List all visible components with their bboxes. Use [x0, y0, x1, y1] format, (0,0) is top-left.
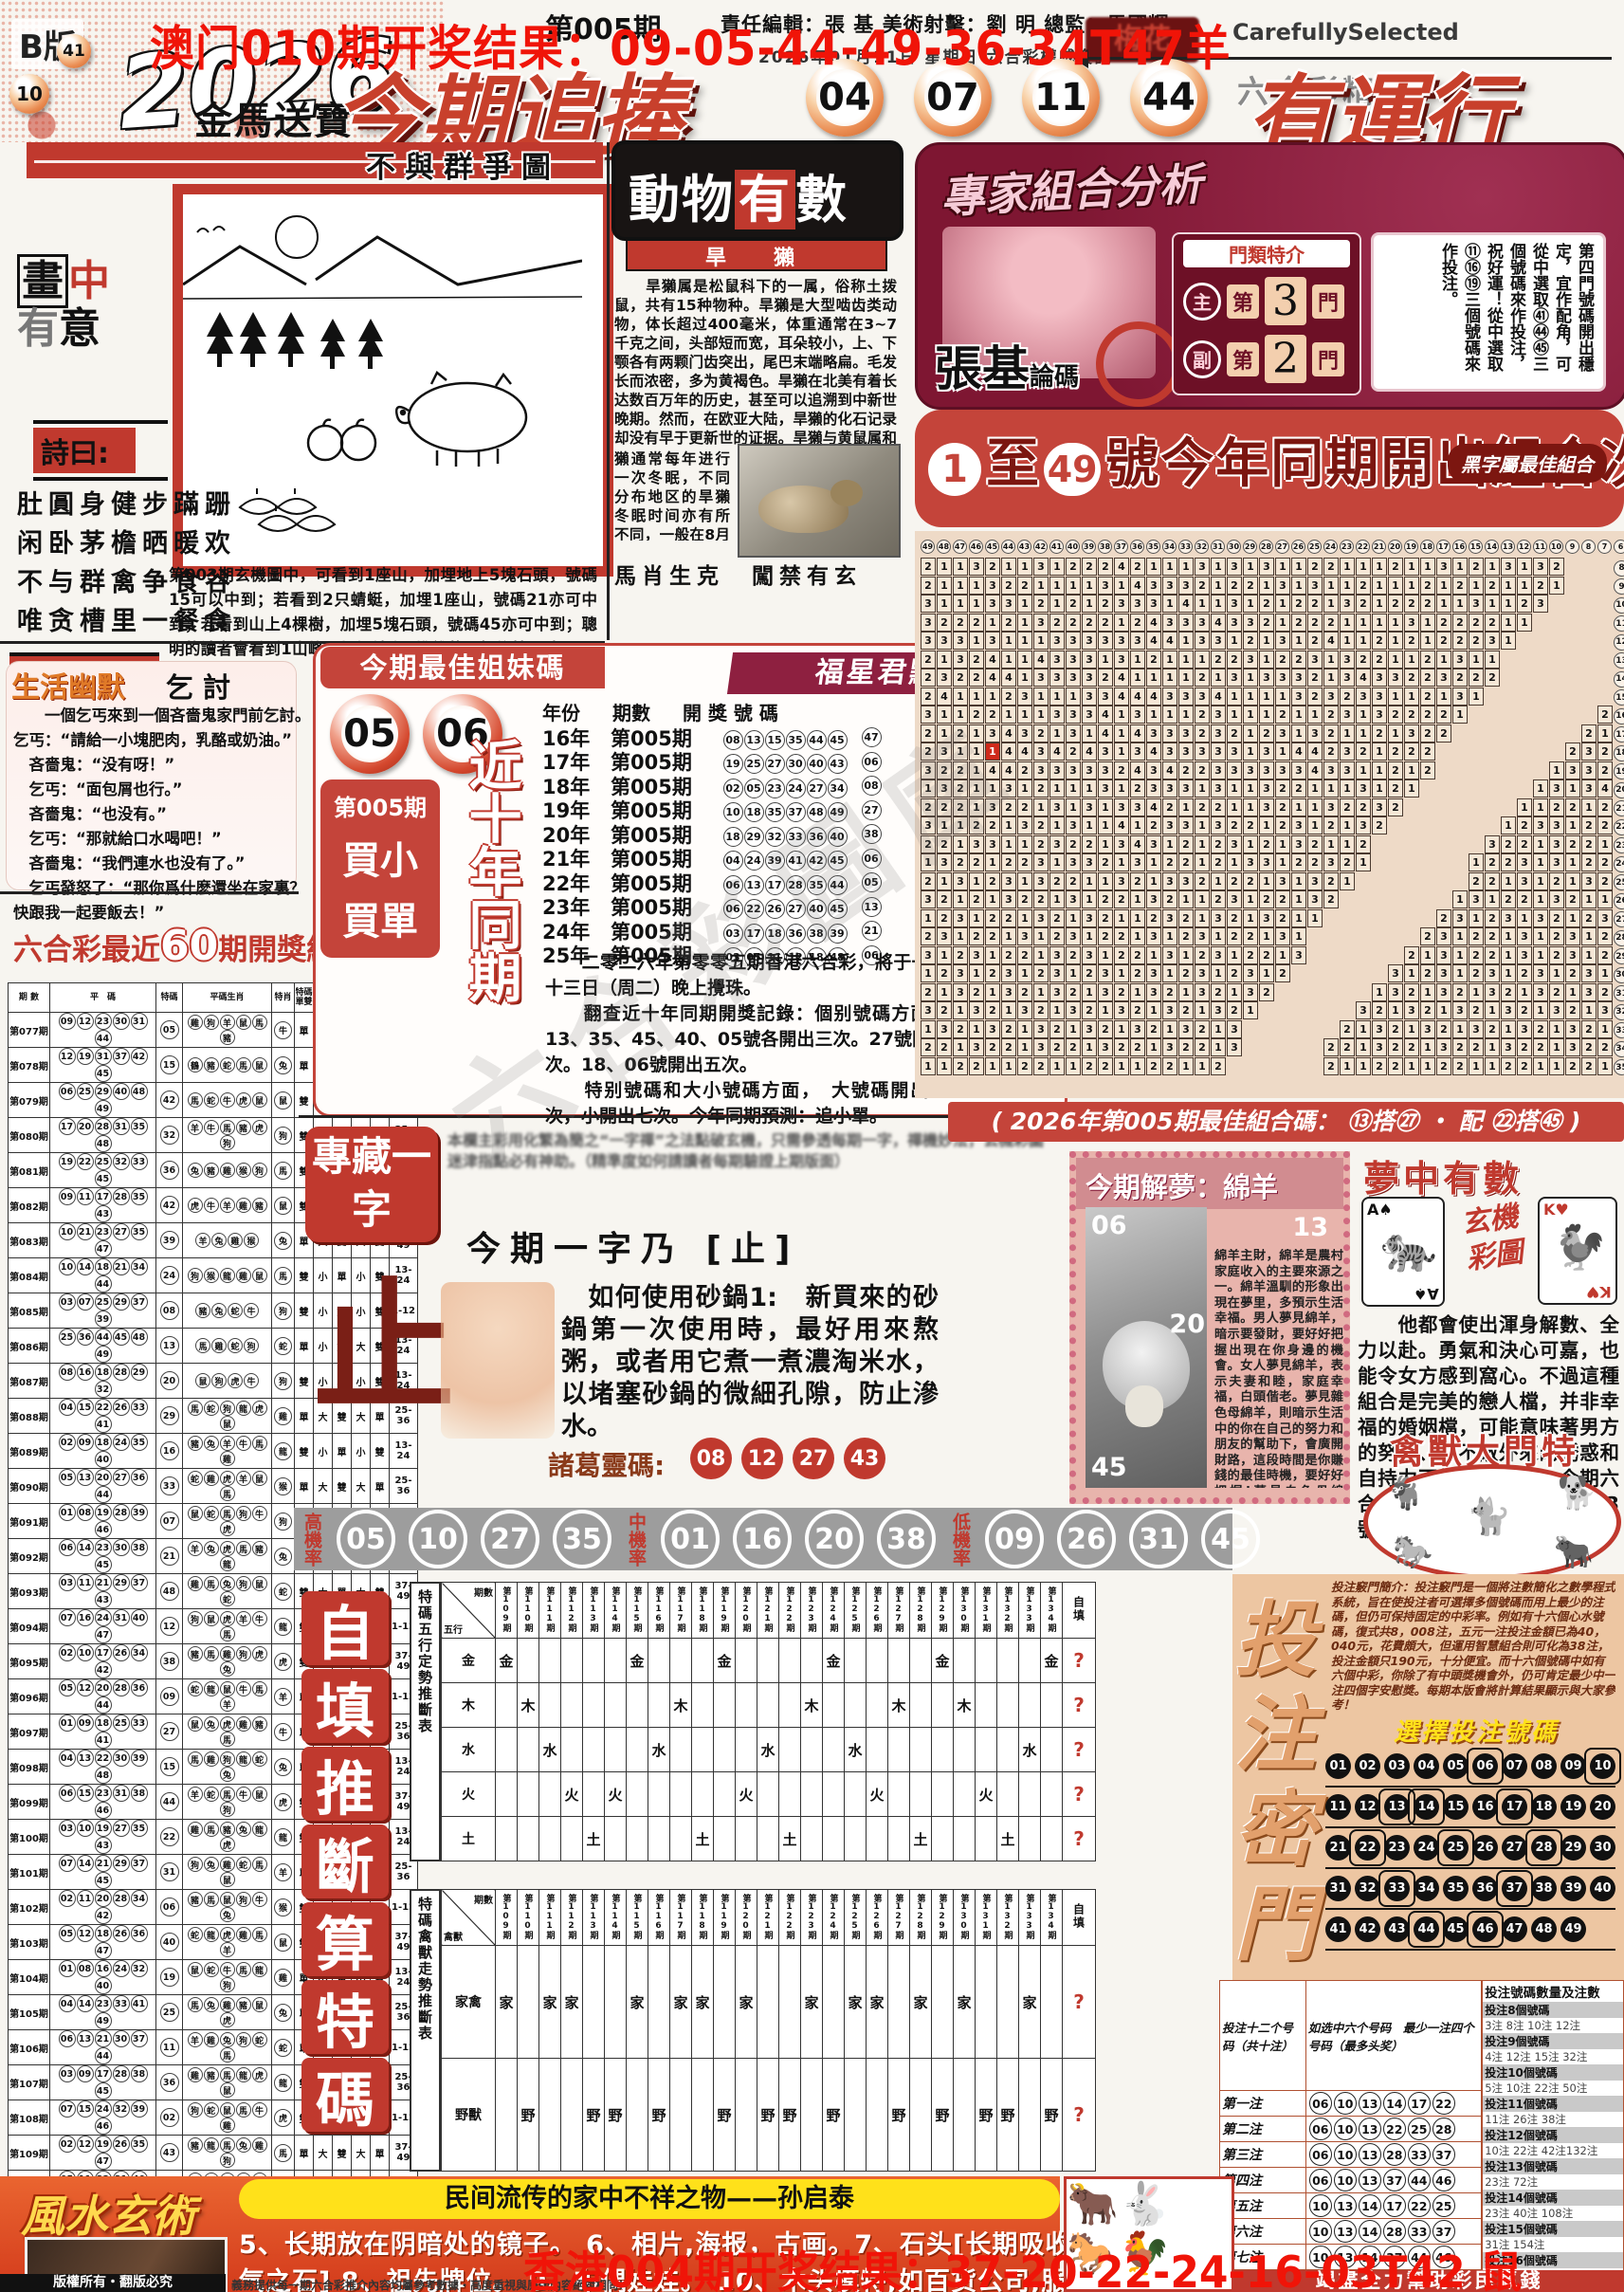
- num-circle: 39: [131, 1750, 148, 1767]
- num-circle: 26: [113, 1399, 130, 1416]
- poem-line: 不与群禽争食谷: [17, 563, 236, 602]
- special-circle: 12: [160, 1617, 179, 1636]
- zodiac-circle: 虎: [228, 1373, 243, 1388]
- zodiac-circle: 羊: [220, 1198, 235, 1213]
- num-circle: 27: [113, 1820, 130, 1837]
- grid-blank: [1533, 682, 1548, 700]
- year-header: 年份期數開 獎 號 碼: [542, 698, 940, 725]
- zodiac-circle: 雞: [204, 1471, 219, 1486]
- zodiac-circle: 狗: [188, 1857, 203, 1872]
- zodiac-circle: 狗: [236, 1576, 251, 1591]
- zf-period: 第121期: [762, 1586, 775, 1632]
- grid-blank: [1243, 1052, 1258, 1070]
- carefully-selected-label: CarefullySelected: [1232, 19, 1459, 46]
- zodiac-circle: 豬: [252, 1716, 267, 1732]
- joke-title: 乞 討: [166, 666, 230, 706]
- grid-blank: [1323, 904, 1339, 922]
- grid-blank: [1420, 848, 1435, 866]
- rate-ball: 35: [553, 1510, 611, 1568]
- grid-cell: 2: [1082, 1057, 1097, 1075]
- year-header-cell: 期數: [612, 698, 650, 725]
- zodiac-circle: 兔: [204, 1997, 219, 2012]
- num-circle: 37: [131, 1574, 148, 1591]
- num-circle: 44: [95, 1696, 112, 1714]
- num-circle: 43: [95, 1837, 112, 1854]
- num-circle: 06: [59, 1539, 76, 1556]
- macau-result-overlay: 澳门010期开奖结果：09-05-44-49-36-34Τ47羊: [150, 9, 1232, 80]
- grid-cell: 2: [953, 1057, 968, 1075]
- grid-blank: [1581, 626, 1597, 644]
- zodiac-circle: 虎: [188, 1198, 203, 1213]
- grid-blank: [1469, 811, 1484, 829]
- grid-cell: 1: [1485, 1057, 1500, 1075]
- zifill-char: 自: [301, 1591, 389, 1665]
- num-circle: 28: [113, 1890, 130, 1907]
- t60-header: 特碼 單雙: [295, 983, 314, 1013]
- num-circle: 36: [77, 1329, 94, 1346]
- year-header-cell: 年份: [542, 698, 580, 725]
- num-circle: 15: [765, 730, 785, 750]
- grid-blank: [1404, 830, 1419, 848]
- num-circle: 44: [95, 1275, 112, 1293]
- num-circle: 39: [765, 851, 785, 871]
- zodiac-circle: 馬: [188, 1401, 203, 1416]
- zhuge-ball: 12: [741, 1438, 783, 1479]
- zf-period: 第130期: [958, 1894, 971, 1939]
- zodiac-circle: 龍: [204, 1927, 219, 1942]
- zf-period: 第133期: [1024, 1894, 1036, 1939]
- bet-number: 49: [1560, 1916, 1586, 1942]
- special-circle: 39: [160, 1231, 179, 1250]
- year-row: 19年第005期10183537484927: [542, 798, 940, 823]
- zodiac-circle: 牛: [252, 1506, 267, 1521]
- bet-num-circle: 17: [1408, 2092, 1431, 2115]
- grid-cell: 2: [1388, 1057, 1403, 1075]
- zf-period: 第131期: [980, 1586, 993, 1632]
- num-circle: 14: [77, 1855, 94, 1872]
- grid-blank: [1469, 830, 1484, 848]
- numbers: 020523242734: [722, 774, 848, 798]
- num-circle: 22: [77, 1153, 94, 1170]
- grid-cell: 1: [937, 1057, 952, 1075]
- bet-number: 13: [1384, 1794, 1410, 1820]
- num-circle: 16: [77, 1609, 94, 1626]
- num-circle: 48: [95, 1135, 112, 1152]
- bet-number: 07: [1502, 1753, 1527, 1779]
- numbers: 061317283544: [722, 871, 848, 895]
- grid-blank: [1581, 682, 1597, 700]
- zodiac-circle: 馬: [220, 2067, 235, 2082]
- num-circle: 09: [77, 1434, 94, 1451]
- grid-blank: [1436, 811, 1451, 829]
- num-circle: 18: [744, 802, 764, 822]
- grid-blank: [1404, 793, 1419, 811]
- zodiac-circle: 豬: [220, 1030, 235, 1045]
- numbers: 062226274045: [722, 894, 848, 919]
- special-circle: 32: [160, 1126, 179, 1145]
- bet-number: 22: [1355, 1835, 1380, 1861]
- num-circle: 10: [77, 1820, 94, 1837]
- grid-cell: 2: [1146, 1057, 1161, 1075]
- bet-selected-outline: [1349, 1829, 1386, 1866]
- num-circle: 19: [95, 1504, 112, 1521]
- banner-drawing-title: 不與群爭圖 ͼ: [27, 142, 603, 178]
- num-circle: 12: [77, 1925, 94, 1942]
- bet-row: 第一注061013141722: [1220, 2091, 1482, 2117]
- zodiac-circle: 牛: [274, 1021, 292, 1039]
- zodiac-circle: 鼠: [220, 2082, 235, 2098]
- combo-grid: 4948474645444342414039383736353433323130…: [915, 531, 1624, 1098]
- grid-blank: [1388, 867, 1403, 885]
- grid-blank: [1452, 867, 1468, 885]
- special-circle: 27: [160, 1722, 179, 1741]
- zf-period: 第123期: [806, 1894, 818, 1939]
- grid-blank: [1501, 756, 1516, 774]
- zodiac-circle: 狗: [220, 1135, 235, 1150]
- zf-period: 第123期: [806, 1586, 818, 1632]
- paragraph: 特别號碼和大小號碼方面， 大號碼開出三次，小開出七次。今年同期預測：追小單。: [545, 1078, 948, 1129]
- num-circle: 37: [131, 1293, 148, 1311]
- zodiac-circle: 鼠: [220, 1681, 235, 1696]
- num-circle: 07: [77, 1293, 94, 1311]
- num-circle: 25: [744, 754, 764, 774]
- zodiac-circle: 兔: [236, 1822, 251, 1837]
- joke-line: 一個乞丐來到一個吝嗇鬼家門前乞討。: [13, 704, 290, 728]
- zf-period: 第109期: [501, 1894, 513, 1939]
- grid-blank: [1549, 737, 1564, 755]
- joke-line: 吝嗇鬼：“也没有。”: [13, 802, 290, 827]
- grid-blank: [1356, 959, 1371, 977]
- grid-blank: [1452, 830, 1468, 848]
- zf-period: 第109期: [501, 1586, 513, 1632]
- zodiac-circle: 牛: [220, 1092, 235, 1108]
- bet-num-circle: 22: [1408, 2194, 1431, 2217]
- zf-period: 第122期: [784, 1586, 796, 1632]
- zodiac-circle: 羊: [236, 1611, 251, 1626]
- zodiac-circle: 牛: [274, 1723, 292, 1741]
- rate-groups: 高機率05102735中機率01162038低機率09263145: [294, 1508, 1267, 1570]
- zodiac-circle: 猴: [244, 1233, 259, 1248]
- expert-analysis-text: 第四門號碼開出穩定，宜作配角，可從中選取㊶㊹㊺三個號碼來作投注，祝好運！從中選取…: [1371, 232, 1606, 392]
- zf-period: 第124期: [828, 1894, 840, 1939]
- num-circle: 18: [95, 1714, 112, 1732]
- bet-number: 39: [1560, 1876, 1586, 1901]
- grid-blank: [1565, 700, 1580, 718]
- zodiac-circle: 鼠: [252, 1268, 267, 1283]
- num-circle: 45: [95, 1065, 112, 1082]
- issue-buy-box: 第005期 買小 買單: [320, 779, 440, 958]
- marmot-photo: [738, 444, 901, 558]
- grid-blank: [1340, 978, 1355, 996]
- grid-blank: [1549, 719, 1564, 737]
- zf-self: 自填: [1071, 1903, 1087, 1930]
- zodiac-circle: 兔: [204, 1541, 219, 1556]
- num-circle: 04: [59, 1995, 76, 2012]
- num-circle: 32: [95, 1381, 112, 1398]
- numbers: 182932333640: [722, 822, 848, 847]
- bet-selected-outline: [1584, 1748, 1621, 1785]
- bet-number: 47: [1502, 1916, 1527, 1942]
- grid-blank: [1549, 663, 1564, 681]
- zf-period: 第134期: [1046, 1894, 1058, 1939]
- zifill-char: 碼: [301, 2058, 389, 2132]
- special-circle: 20: [160, 1371, 179, 1390]
- num-circle: 36: [131, 1679, 148, 1696]
- zodiac-circle: 狗: [274, 1372, 292, 1390]
- copyright-bar: 版權所有・翻版必究: [0, 2274, 226, 2292]
- grid-blank: [1323, 922, 1339, 940]
- zodiac-circle: 狗: [252, 1163, 267, 1178]
- special-circle: 42: [160, 1091, 179, 1109]
- grid-cell: 1: [1114, 1057, 1129, 1075]
- num-circle: 16: [77, 1364, 94, 1381]
- num-circle: 12: [77, 1013, 94, 1030]
- num-circle: 37: [131, 1855, 148, 1872]
- zodiac-circle: 蛇: [220, 1591, 235, 1606]
- bet-number: 18: [1531, 1794, 1557, 1820]
- zodiac-circle: 羊: [188, 2032, 203, 2047]
- num-circle: 42: [131, 1048, 148, 1065]
- num-circle: 13: [744, 875, 764, 895]
- special-circle: 36: [160, 2073, 179, 2092]
- zodiac-circle: 羊: [220, 1015, 235, 1030]
- zodiac-circle: 虎: [252, 1646, 267, 1661]
- num-circle: 45: [95, 1170, 112, 1187]
- num-circle: 40: [131, 1609, 148, 1626]
- grid-cell: 1: [1469, 1057, 1484, 1075]
- zf-period: 第129期: [937, 1586, 949, 1632]
- num-circle: 07: [59, 1609, 76, 1626]
- zang-blurred-intro: 本欄主彩用化繁為簡之“一字禪”之法點破玄機，只需參透每期一字，禪機妙法，玄機彩圖…: [447, 1130, 1054, 1210]
- zodiac-circle: 虎: [274, 1653, 292, 1671]
- grid-blank: [1501, 682, 1516, 700]
- num-circle: 28: [113, 1364, 130, 1381]
- combos-badge: 黑字屬最佳組合: [1448, 444, 1607, 483]
- num-circle: 38: [131, 1785, 148, 1802]
- bet-number: 44: [1414, 1916, 1439, 1942]
- huazhongyouyi-emblem: 畫中 有意: [17, 258, 159, 414]
- grid-blank: [1388, 830, 1403, 848]
- zf-period: 第114期: [610, 1586, 622, 1632]
- num-circle: 44: [95, 1030, 112, 1047]
- num-circle: 44: [95, 1486, 112, 1503]
- num-circle: 04: [59, 1750, 76, 1767]
- bet-number: 20: [1590, 1794, 1615, 1820]
- num-circle: 49: [95, 2012, 112, 2029]
- grid-cell: 2: [1452, 1057, 1468, 1075]
- grid-blank: [1243, 1015, 1258, 1033]
- grid-blank: [1291, 1052, 1306, 1070]
- special-circle: 06: [160, 1898, 179, 1916]
- grid-cell: 1: [1597, 1057, 1613, 1075]
- zodiac-circle: 馬: [220, 1486, 235, 1501]
- num-circle: 43: [95, 1205, 112, 1222]
- wuxing-table: 特碼五行定勢推斷表期數五行第109期第110期第111期第112期第113期第1…: [410, 1582, 1096, 1861]
- joke-line: 吝嗇鬼：“没有呀！”: [13, 753, 290, 778]
- num-circle: 17: [95, 1644, 112, 1661]
- num-circle: 29: [95, 1083, 112, 1100]
- num-circle: 10: [77, 1644, 94, 1661]
- grid-blank: [1323, 1015, 1339, 1033]
- zf-period: 第118期: [697, 1894, 709, 1939]
- num-circle: 31: [131, 1013, 148, 1030]
- bet-num-circle: 10: [1334, 2143, 1357, 2166]
- zodiac-circle: 鼠: [252, 1997, 267, 2012]
- beast-table: 特碼禽獸走勢推斷表期數禽獸第109期第110期第111期第112期第113期第1…: [410, 1889, 1096, 2172]
- zodiac-circle: 雞: [188, 2067, 203, 2082]
- num-circle: 27: [786, 899, 806, 919]
- zf-row: 野獸野野野野野野野野野野野野野?: [442, 2059, 1096, 2172]
- num-circle: 47: [95, 1942, 112, 1959]
- divider: [0, 891, 299, 894]
- zf-period: 第126期: [871, 1894, 884, 1939]
- zodiac-circle: 雞: [220, 2118, 235, 2133]
- bet-count-val: 10注 22注 42注132注: [1483, 2143, 1623, 2158]
- bet-vertical-char: 密: [1234, 1783, 1325, 1878]
- num-circle: 18: [95, 1925, 112, 1942]
- bet-selected-outline: [1525, 1829, 1562, 1866]
- grid-blank: [1452, 719, 1468, 737]
- grid-blank: [1388, 904, 1403, 922]
- zodiac-circle: 虎: [252, 2067, 267, 2082]
- num-circle: 11: [77, 1188, 94, 1205]
- num-circle: 04: [59, 1399, 76, 1416]
- rate-ball: 05: [337, 1510, 395, 1568]
- zf-period: 第126期: [871, 1586, 884, 1632]
- grid-blank: [1549, 626, 1564, 644]
- zodiac-circle: 豬: [188, 1646, 203, 1661]
- zodiac-circle: 馬: [236, 1962, 251, 1977]
- zodiac-circle: 蛇: [274, 2039, 292, 2057]
- num-circle: 43: [828, 754, 848, 774]
- ten-year-paragraphs: 二零二六年第零零五期香港六合彩，將于一月十三日（周二）晚上攪珠。 翻查近十年同期…: [545, 950, 948, 1129]
- num-circle: 08: [723, 730, 743, 750]
- grid-blank: [1485, 700, 1500, 718]
- newspaper-page: B版 2026 41 10 金馬送寶 第005期 責任編輯：張 基 美術射擊：劉…: [0, 0, 1624, 2292]
- num-circle: 28: [113, 1679, 130, 1696]
- num-circle: 45: [113, 1329, 130, 1346]
- num-circle: 17: [95, 1188, 112, 1205]
- zodiac-circle: 虎: [252, 1401, 267, 1416]
- num-circle: 10: [59, 1223, 76, 1240]
- zodiac-circle: 龍: [274, 2074, 292, 2092]
- grid-row: 32121322131221321123122132131221321126: [921, 885, 1624, 904]
- bet-number: 19: [1560, 1794, 1586, 1820]
- grid-blank: [1517, 663, 1532, 681]
- grid-row: 22213221313133421221132113223211221221: [921, 793, 1624, 812]
- grid-row: 12312213213211232132132112312313212327: [921, 904, 1624, 923]
- t60-header: 特碼: [156, 983, 183, 1013]
- num-circle: 25: [95, 1153, 112, 1170]
- grid-row: 2121343213141433323212313211213222117: [921, 719, 1624, 738]
- grid-blank: [1420, 811, 1435, 829]
- grid-blank: [1404, 848, 1419, 866]
- zodiac-circle: 龍: [274, 1828, 292, 1846]
- grid-row: 312312213231221312312213213122131231229: [921, 941, 1624, 960]
- bet-number: 11: [1325, 1794, 1351, 1820]
- mystery-drawing-frame: [173, 184, 613, 577]
- zf-period: 第125期: [849, 1586, 862, 1632]
- t60-header: 平 碼: [50, 983, 156, 1013]
- grid-blank: [1581, 645, 1597, 663]
- grid-blank: [1323, 996, 1339, 1014]
- zf-wrap: 特碼禽獸走勢推斷表期數禽獸第109期第110期第111期第112期第113期第1…: [410, 1889, 1096, 2172]
- num-circle: 26: [765, 899, 785, 919]
- rate-ball: 26: [1057, 1510, 1116, 1568]
- grid-blank: [1565, 719, 1580, 737]
- grid-row: 333131113333334413312131241121212223112: [921, 626, 1624, 645]
- num-circle: 36: [786, 924, 806, 944]
- zf-row: 家禽家家家家家家家家家家家家家?: [442, 1946, 1096, 2059]
- zf-row: 火火火火火火?: [442, 1772, 1096, 1817]
- num-circle: 42: [807, 851, 827, 871]
- bet-vertical-char: 投: [1234, 1593, 1325, 1688]
- zf-period: 第116期: [653, 1894, 666, 1939]
- zodiac-circle: 羊: [220, 1942, 235, 1957]
- grid-blank: [1581, 663, 1597, 681]
- zodiac-circle: 馬: [236, 1541, 251, 1556]
- num-circle: 18: [765, 924, 785, 944]
- corner-ball-41: 41: [57, 34, 91, 68]
- zf-period: 第121期: [762, 1894, 775, 1939]
- dream-title: 今期解夢：綿羊: [1076, 1158, 1343, 1209]
- num-circle: 14: [77, 1995, 94, 2012]
- bet-selected-outline: [1467, 1748, 1504, 1785]
- grid-blank: [1340, 996, 1355, 1014]
- zf-period: 第125期: [849, 1894, 862, 1939]
- num-circle: 33: [131, 1714, 148, 1732]
- zodiac-circle: 雞: [188, 1822, 203, 1837]
- num-circle: 15: [77, 1399, 94, 1416]
- rate-ball: 45: [1201, 1510, 1260, 1568]
- grid-row: 321321321321321321321321321321321321332: [921, 996, 1624, 1015]
- zf-period: 第119期: [719, 1894, 731, 1939]
- grid-blank: [1259, 1033, 1274, 1051]
- grid-cell: 2: [1565, 1057, 1580, 1075]
- bet-count-name: 投注15個號碼: [1483, 2221, 1623, 2237]
- grid-blank: [1372, 941, 1387, 959]
- num-circle: 28: [113, 1504, 130, 1521]
- dream-box: 今期解夢：綿羊 06 20 45 13 綿羊主財，綿羊是農村家庭收入的主要來源之…: [1069, 1151, 1350, 1504]
- grid-row: 2111322111131433321221313112111212121121…: [921, 571, 1624, 590]
- grid-blank: [1275, 978, 1290, 996]
- zodiac-circle: 鼠: [236, 1015, 251, 1030]
- num-circle: 35: [131, 1820, 148, 1837]
- zodiac-circle: 兔: [220, 1576, 235, 1591]
- zodiac-circle: 蛇: [188, 1681, 203, 1696]
- num-circle: 02: [59, 2136, 76, 2153]
- joke-line: 吝嗇鬼：“我們連水也没有了。”: [13, 852, 290, 876]
- zodiac-circle: 龍: [204, 2137, 219, 2153]
- grid-blank: [1388, 811, 1403, 829]
- num-circle: 06: [723, 899, 743, 919]
- zodiac-circle: 蛇: [274, 1583, 292, 1601]
- bet-selected-outline: [1437, 1829, 1474, 1866]
- num-circle: 29: [744, 827, 764, 847]
- zodiac-circle: 鼠: [252, 1471, 267, 1486]
- num-circle: 35: [131, 1223, 148, 1240]
- num-circle: 05: [59, 1679, 76, 1696]
- grid-blank: [1388, 941, 1403, 959]
- expert-title: 專家組合分析: [939, 150, 1203, 226]
- grid-blank: [1469, 737, 1484, 755]
- zodiac-circle: 龍: [236, 2067, 251, 2082]
- grid-row: 2311144342431343333313144232122223218: [921, 737, 1624, 756]
- num-circle: 38: [131, 1539, 148, 1556]
- grid-row: 3112211133341311123111211231322221216: [921, 700, 1624, 719]
- grid-row-label: 35: [1614, 1059, 1624, 1075]
- num-circle: 35: [131, 1188, 148, 1205]
